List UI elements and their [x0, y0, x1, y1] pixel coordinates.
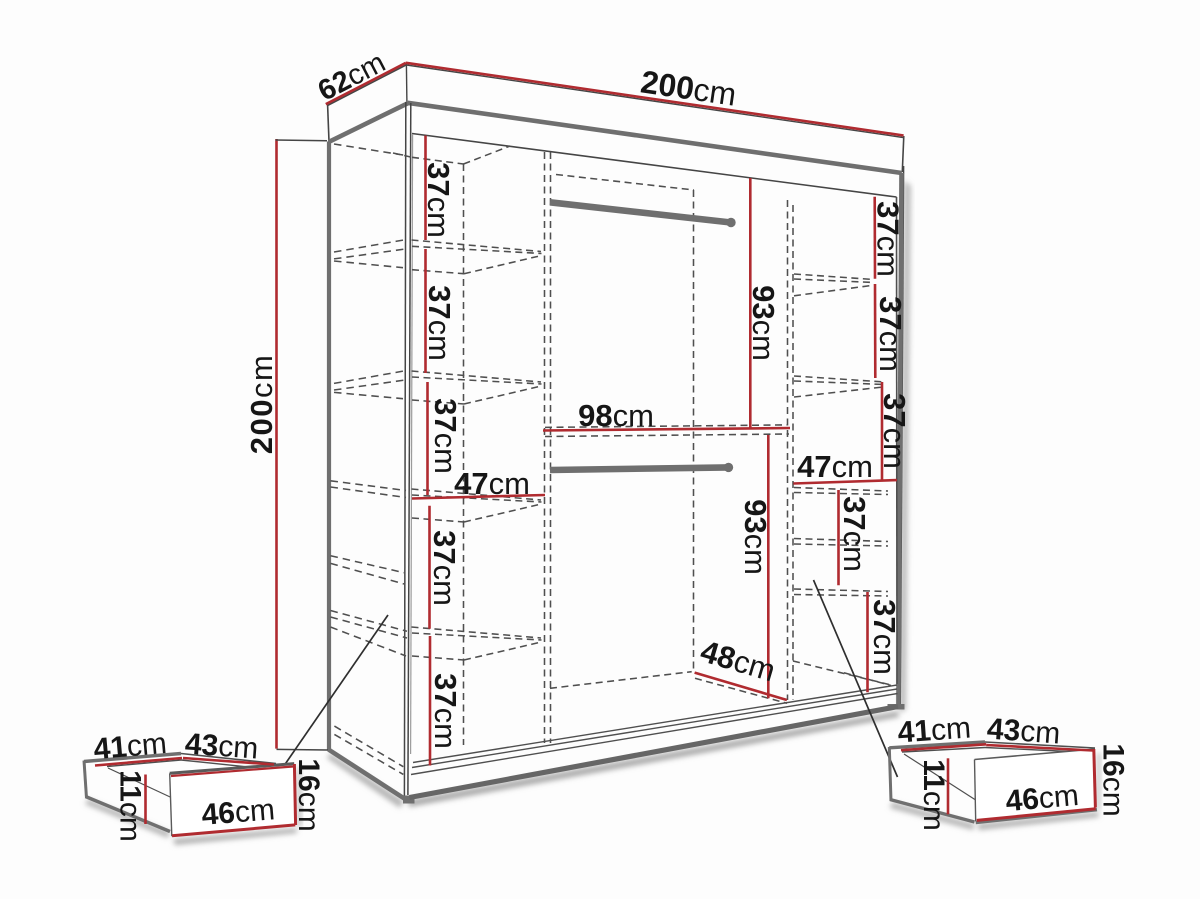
svg-text:16cm: 16cm — [292, 758, 325, 831]
svg-text:37cm: 37cm — [428, 398, 463, 474]
svg-text:41cm: 41cm — [897, 712, 972, 750]
svg-text:93cm: 93cm — [746, 285, 781, 361]
svg-text:43cm: 43cm — [184, 728, 259, 766]
svg-text:11cm: 11cm — [114, 770, 147, 842]
svg-text:47cm: 47cm — [454, 466, 530, 501]
svg-text:37cm: 37cm — [427, 530, 462, 606]
svg-text:16cm: 16cm — [1097, 743, 1130, 816]
svg-text:43cm: 43cm — [986, 713, 1061, 751]
svg-text:98cm: 98cm — [578, 398, 654, 433]
svg-text:37cm: 37cm — [877, 393, 912, 469]
svg-text:200cm: 200cm — [244, 354, 279, 455]
svg-text:11cm: 11cm — [917, 759, 950, 831]
svg-text:93cm: 93cm — [738, 499, 773, 575]
svg-text:37cm: 37cm — [428, 673, 463, 749]
svg-text:37cm: 37cm — [837, 496, 872, 572]
svg-text:37cm: 37cm — [422, 285, 457, 361]
svg-text:47cm: 47cm — [797, 449, 873, 484]
svg-text:37cm: 37cm — [867, 599, 902, 675]
svg-text:41cm: 41cm — [92, 727, 168, 766]
svg-text:46cm: 46cm — [1004, 779, 1080, 818]
svg-text:37cm: 37cm — [871, 201, 906, 277]
svg-text:37cm: 37cm — [421, 162, 456, 238]
svg-text:46cm: 46cm — [200, 793, 276, 832]
svg-text:37cm: 37cm — [873, 296, 908, 372]
